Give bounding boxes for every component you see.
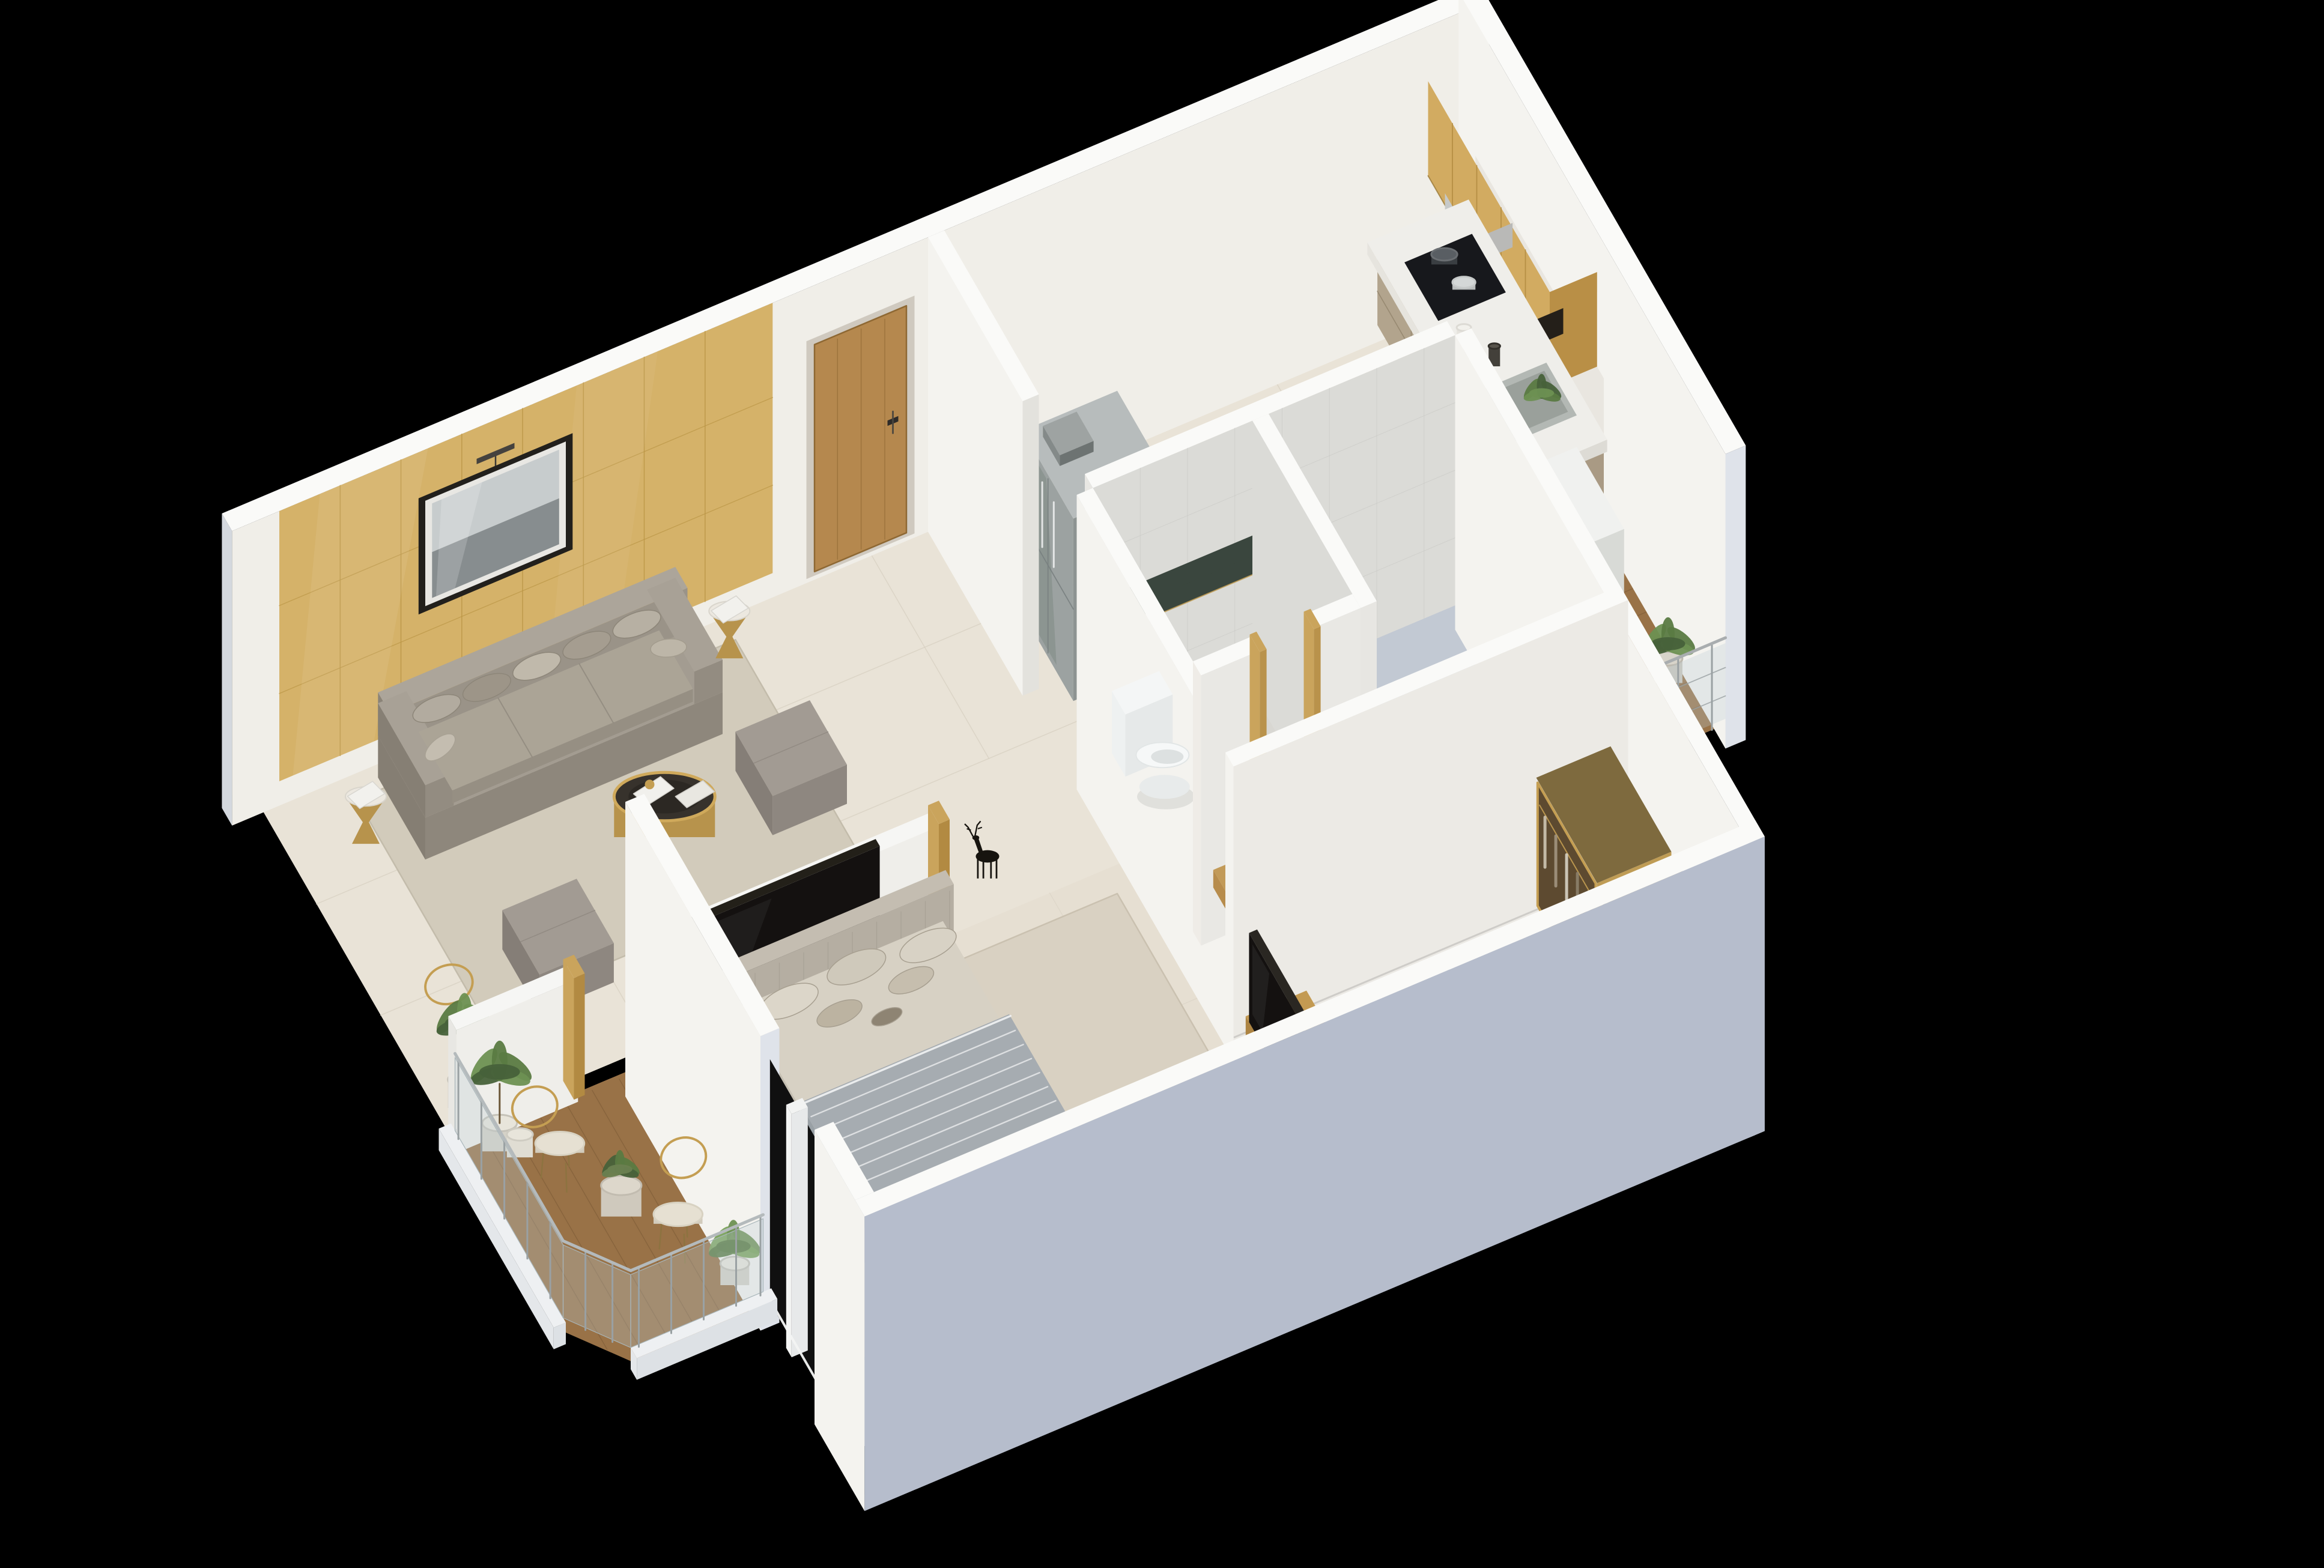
chair-seat-top bbox=[535, 1131, 584, 1155]
stub-wall-trim-front bbox=[574, 973, 585, 1100]
window-mullion-side bbox=[786, 1105, 792, 1358]
bistro-stool bbox=[601, 1176, 642, 1217]
entry-door bbox=[807, 295, 915, 579]
counter-bottle-top bbox=[1488, 344, 1500, 349]
toilet-base bbox=[1139, 775, 1190, 799]
east-wall-front bbox=[1726, 446, 1746, 749]
window-mullion bbox=[786, 1098, 808, 1357]
north-west-wall-side bbox=[222, 513, 232, 826]
window-mullion-front bbox=[792, 1107, 808, 1357]
door-leaf bbox=[815, 306, 906, 572]
chair-leg bbox=[566, 1163, 567, 1192]
cooking-pot bbox=[1452, 277, 1475, 290]
table-decor bbox=[645, 779, 655, 789]
chair-seat bbox=[654, 1203, 703, 1226]
apartment-isometric-render bbox=[0, 0, 2324, 1568]
chair-seat bbox=[535, 1131, 584, 1155]
toilet-lid-inner bbox=[1151, 749, 1183, 764]
south-east-wall-side bbox=[855, 1200, 865, 1511]
cooking-pot-top bbox=[1431, 248, 1457, 261]
cooking-pot bbox=[1431, 248, 1457, 264]
olive-plant-pot-top bbox=[507, 1128, 533, 1141]
chair-seat-top bbox=[654, 1203, 703, 1226]
potted-plant-leaf bbox=[479, 1064, 520, 1080]
cooking-pot-top bbox=[1452, 277, 1475, 288]
stub-wall-trim bbox=[563, 955, 585, 1100]
hall-wall-front bbox=[1023, 395, 1039, 696]
apartment-floor-plan bbox=[0, 0, 2324, 1568]
stool-plant-leaf bbox=[607, 1164, 633, 1174]
bistro-stool-top bbox=[601, 1176, 642, 1195]
sink-plants-leaf bbox=[1529, 389, 1555, 398]
toilet-front-wall-side bbox=[1193, 661, 1201, 945]
stub-wall-trim-side bbox=[563, 959, 574, 1100]
floor-plan-stage: 3D isometric cutaway floor plan render o… bbox=[0, 0, 2324, 1568]
bath-front-wall-side bbox=[1225, 752, 1234, 1061]
